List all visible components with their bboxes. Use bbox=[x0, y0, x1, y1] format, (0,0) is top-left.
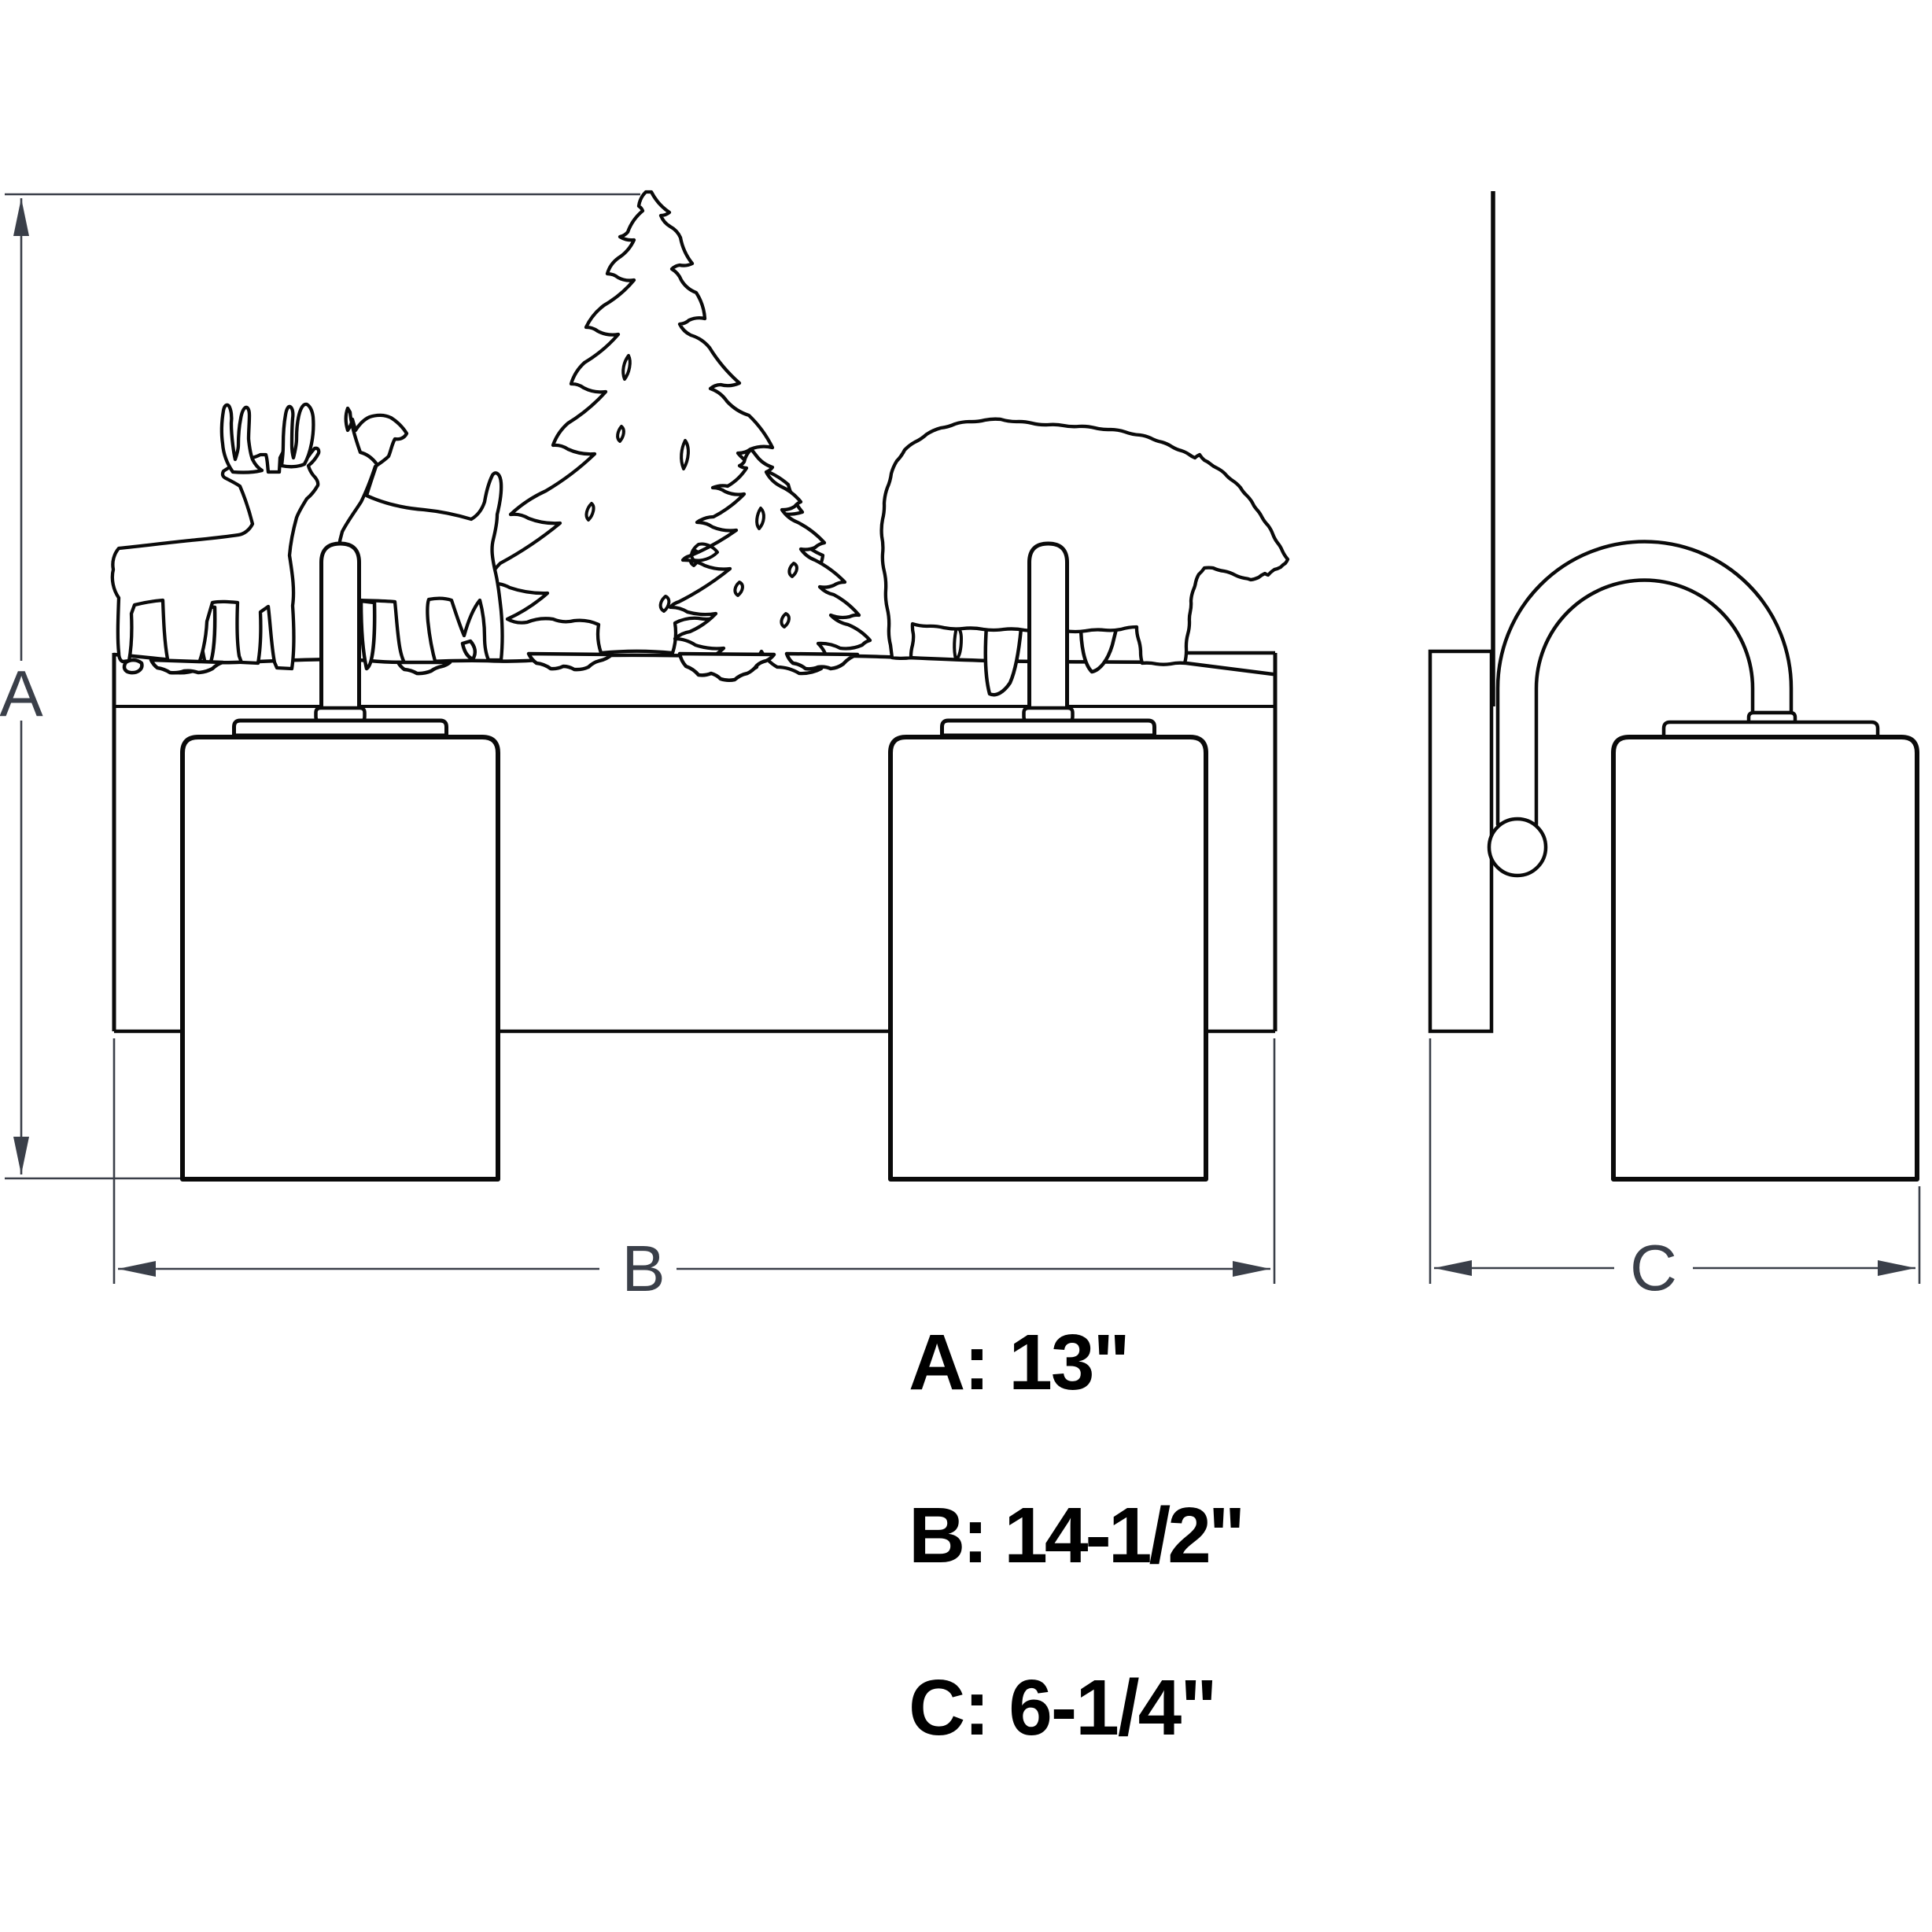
svg-text:B: B bbox=[621, 1232, 665, 1305]
svg-text:B: 14-1/2": B: 14-1/2" bbox=[909, 1491, 1242, 1580]
svg-text:A: 13": A: 13" bbox=[909, 1318, 1129, 1407]
svg-text:C: C bbox=[1630, 1231, 1677, 1304]
svg-text:A: A bbox=[0, 657, 43, 730]
svg-text:C: 6-1/4": C: 6-1/4" bbox=[909, 1664, 1216, 1752]
